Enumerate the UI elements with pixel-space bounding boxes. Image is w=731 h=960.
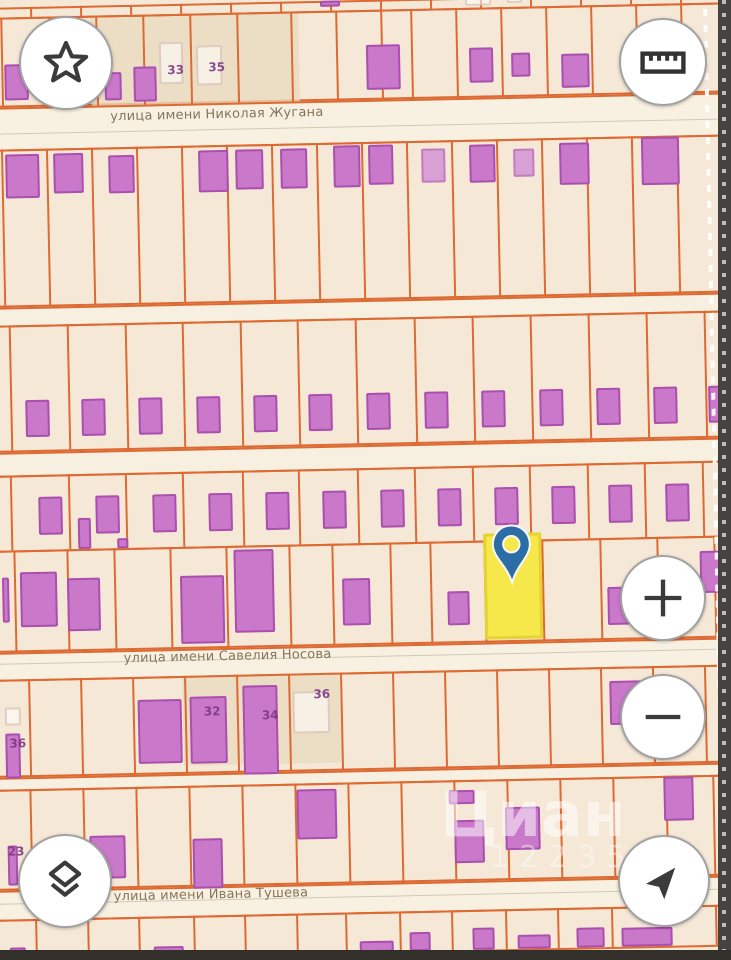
favorites-button[interactable]: [19, 16, 113, 110]
star-icon: [40, 37, 92, 89]
building: [108, 155, 135, 194]
parcel-boundary: [230, 3, 232, 13]
building: [561, 53, 590, 88]
parcel-boundary: [347, 782, 351, 883]
building: [133, 66, 157, 101]
parcel-boundary: [712, 775, 716, 876]
parcel-boundary: [472, 466, 476, 541]
screen-edge-right: [718, 0, 731, 960]
parcel-boundary: [244, 915, 247, 955]
house-number: 36: [9, 737, 26, 749]
parcel-boundary: [631, 136, 636, 294]
parcel-boundary: [600, 667, 604, 765]
zoom-in-button[interactable]: [620, 555, 706, 641]
street-band: [0, 635, 731, 682]
parcel-boundary: [181, 146, 186, 304]
building: [653, 387, 678, 424]
building: [469, 144, 496, 183]
parcel-boundary: [587, 463, 591, 538]
building: [469, 47, 494, 82]
parcel-boundary: [132, 677, 136, 775]
building: [576, 927, 604, 948]
parcel-boundary: [392, 671, 396, 769]
parcel-boundary: [505, 909, 508, 949]
building: [665, 483, 690, 521]
parcel-row-line: [0, 535, 731, 553]
parcel-boundary: [702, 461, 706, 536]
house-number: 33: [167, 64, 184, 76]
parcel-boundary: [389, 543, 393, 645]
building: [481, 390, 506, 427]
house-number: 36: [313, 688, 330, 700]
building: [196, 396, 221, 433]
parcel-boundary: [345, 913, 348, 953]
building: [117, 538, 128, 548]
parcel-boundary: [612, 777, 616, 878]
building: [95, 495, 120, 533]
parcel-boundary: [182, 322, 187, 449]
parcel-boundary: [357, 468, 361, 543]
parcel-boundary: [548, 668, 552, 766]
building: [198, 150, 229, 193]
parcel-boundary: [10, 475, 14, 550]
parcel-boundary: [316, 143, 321, 301]
parcel-boundary: [30, 7, 32, 17]
parcel-boundary: [361, 142, 366, 300]
building: [518, 934, 551, 949]
parcel-boundary: [496, 139, 501, 297]
parcel-boundary: [444, 670, 448, 768]
building: [280, 148, 308, 189]
parcel-boundary: [80, 6, 82, 16]
building: [320, 0, 340, 6]
parcel-boundary: [80, 678, 84, 776]
building: [663, 776, 694, 821]
ruler-icon: [638, 37, 688, 87]
parcel-boundary: [406, 141, 411, 299]
building: [253, 395, 278, 432]
building: [208, 493, 233, 531]
parcel-boundary: [399, 911, 402, 951]
map-canvas: улица имени Николая Жуганаулица имени Са…: [0, 0, 731, 960]
parcel-boundary: [557, 908, 560, 948]
building: [53, 153, 84, 194]
parcel-boundary: [180, 4, 182, 14]
building: [641, 136, 680, 185]
building: [424, 391, 449, 428]
building: [20, 572, 58, 628]
parcel-boundary: [472, 316, 477, 443]
parcel-boundary: [125, 473, 129, 548]
map-pin[interactable]: [491, 524, 532, 589]
building: [38, 496, 63, 534]
parcel-boundary: [559, 778, 563, 879]
screen-edge-bottom: [0, 950, 731, 960]
building: [5, 707, 21, 725]
parcel-boundary: [545, 6, 549, 96]
building: [437, 488, 462, 526]
parcel-boundary: [288, 545, 292, 647]
building: [448, 790, 474, 805]
parcel-boundary: [335, 11, 339, 101]
building: [513, 148, 535, 176]
parcel-boundary: [113, 548, 117, 650]
building: [465, 0, 491, 6]
building: [296, 789, 337, 840]
building: [78, 518, 92, 549]
parcel-boundary: [646, 312, 651, 439]
building: [180, 575, 225, 644]
parcel-boundary: [242, 471, 246, 546]
parcel-boundary: [13, 550, 17, 652]
building: [265, 492, 290, 530]
parcel-boundary: [297, 319, 302, 446]
parcel-boundary: [496, 669, 500, 767]
parcel-boundary: [590, 5, 594, 95]
parcel-boundary: [46, 149, 51, 307]
house-number: 34: [262, 709, 279, 721]
parcel-boundary: [271, 144, 276, 302]
navigation-arrow-icon: [633, 850, 695, 912]
parcel-boundary: [500, 7, 504, 97]
house-number: 23: [8, 845, 25, 857]
parcel-boundary: [451, 140, 456, 298]
locate-button[interactable]: [618, 835, 710, 927]
building: [409, 932, 430, 951]
parcel-boundary: [530, 315, 535, 442]
parcel-boundary: [91, 148, 96, 306]
parcel-boundary: [225, 546, 229, 648]
parcel-boundary: [240, 321, 245, 448]
parcel-boundary: [380, 0, 382, 10]
building: [67, 578, 101, 632]
parcel-boundary: [298, 469, 302, 544]
parcel-boundary: [280, 2, 282, 12]
building: [152, 494, 177, 532]
building: [242, 685, 279, 775]
building: [192, 838, 223, 889]
layers-icon: [40, 856, 90, 906]
building: [333, 145, 361, 188]
parcel-boundary: [241, 785, 245, 886]
house-number: 35: [208, 61, 225, 73]
parcel-boundary: [704, 311, 709, 438]
building: [308, 394, 333, 431]
building: [505, 806, 541, 850]
parcel-boundary: [169, 547, 173, 649]
parcel-boundary: [136, 147, 141, 305]
parcel-boundary: [9, 325, 14, 452]
parcel-boundary: [430, 0, 432, 9]
parcel-boundary: [588, 313, 593, 440]
parcel-boundary: [414, 467, 418, 542]
building: [551, 486, 576, 524]
parcel-boundary: [611, 907, 614, 947]
parcel-boundary: [0, 18, 4, 108]
parcel-boundary: [455, 8, 459, 98]
parcel-boundary: [188, 786, 192, 887]
parcel-boundary: [67, 324, 72, 451]
building: [539, 389, 564, 426]
building: [138, 397, 163, 434]
parcel-boundary: [599, 538, 603, 640]
layers-button[interactable]: [18, 834, 112, 928]
zoom-out-button[interactable]: [620, 674, 706, 760]
map-viewport[interactable]: улица имени Николая Жуганаулица имени Са…: [0, 0, 731, 960]
minus-icon: [637, 691, 689, 743]
building: [366, 393, 391, 430]
building: [366, 44, 401, 90]
parcel-boundary: [130, 5, 132, 15]
building: [447, 591, 470, 625]
parcel-boundary: [68, 474, 72, 549]
building: [559, 142, 590, 185]
building: [608, 484, 633, 522]
building: [342, 578, 371, 626]
building: [494, 487, 519, 525]
building: [81, 398, 106, 435]
building: [5, 154, 40, 199]
house-number: 32: [204, 705, 221, 717]
parcel-boundary: [429, 542, 433, 644]
building: [472, 927, 494, 949]
building: [507, 0, 522, 3]
building: [368, 144, 394, 185]
parcel-boundary: [400, 781, 404, 882]
building: [380, 489, 405, 527]
building: [596, 388, 621, 425]
building: [421, 148, 446, 182]
building: [25, 400, 50, 437]
building: [454, 820, 485, 864]
building: [235, 149, 264, 190]
parcel-boundary: [296, 914, 299, 954]
parcel-boundary: [182, 472, 186, 547]
parcel-boundary: [541, 138, 546, 296]
parcel-boundary: [125, 323, 130, 450]
parcel-boundary: [451, 910, 454, 950]
building: [322, 490, 347, 528]
building: [233, 549, 275, 633]
building: [2, 578, 10, 623]
parcel-boundary: [331, 544, 335, 646]
parcel-boundary: [410, 9, 414, 99]
building: [511, 53, 530, 77]
parcel-boundary: [644, 462, 648, 537]
building: [621, 927, 672, 947]
parcel-boundary: [135, 787, 139, 888]
parcel-boundary: [414, 317, 419, 444]
plus-icon: [637, 572, 689, 624]
parcel-boundary: [355, 318, 360, 445]
measure-button[interactable]: [619, 18, 707, 106]
building: [138, 699, 183, 764]
parcel-boundary: [28, 679, 32, 777]
